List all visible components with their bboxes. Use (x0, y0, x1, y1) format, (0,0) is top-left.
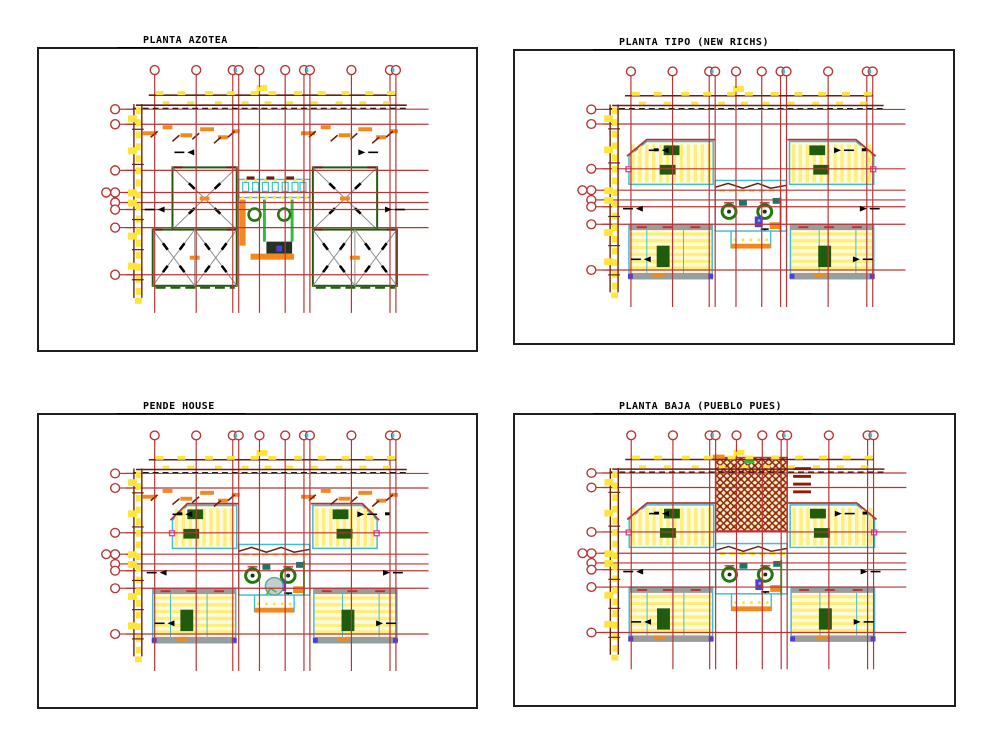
upper-apartment-wing (788, 503, 876, 547)
column-grid-bubbles-top (626, 67, 877, 88)
left-dimension-strip (128, 104, 144, 304)
panel-title-pende-house: PENDE HOUSE (117, 401, 245, 414)
title-text: PLANTA AZOTEA (143, 35, 228, 46)
panel-planta-tipo: PLANTA TIPO (NEW RICHS) (513, 49, 955, 345)
upper-apartment-wing (626, 503, 715, 547)
upper-apartment-wing (311, 504, 390, 549)
panel-pende-house: PENDE HOUSE (37, 413, 478, 709)
title-text: PLANTA BAJA (PUEBLO PUES) (619, 401, 782, 412)
left-dimension-strip (604, 468, 620, 660)
lower-apartment-room (790, 587, 875, 641)
roof-slope-room (313, 230, 397, 286)
plan-drawing-pende-house (39, 415, 476, 707)
left-dimension-strip (604, 105, 620, 299)
column-grid-bubbles-top (150, 431, 400, 452)
top-dimension-band (133, 450, 410, 472)
upper-apartment-wing (170, 504, 239, 549)
left-dimension-strip (128, 469, 144, 663)
roof-overhang-marks (143, 125, 240, 143)
plan-drawing-planta-baja (515, 415, 954, 705)
panel-title-planta-tipo: PLANTA TIPO (NEW RICHS) (593, 37, 799, 50)
panel-title-planta-baja: PLANTA BAJA (PUEBLO PUES) (593, 401, 812, 414)
top-dimension-band (609, 86, 886, 108)
central-roof-core (239, 176, 310, 259)
drawing-sheet: PLANTA AZOTEA PLANTA TIPO (NEW RICHS) PE… (0, 0, 1000, 751)
roof-slope-room (172, 167, 236, 229)
column-grid-bubbles-top (150, 66, 400, 88)
roof-overhang-marks (301, 125, 398, 143)
plan-drawing-planta-azotea (39, 49, 476, 350)
roof-slope-room (153, 230, 237, 286)
lower-apartment-room (789, 224, 874, 279)
title-text: PLANTA TIPO (NEW RICHS) (619, 37, 769, 48)
top-dimension-band (133, 85, 410, 108)
panel-planta-azotea: PLANTA AZOTEA (37, 47, 478, 352)
lower-apartment-room (628, 224, 713, 279)
title-text: PENDE HOUSE (143, 401, 215, 412)
roof-slope-room (313, 167, 377, 229)
upper-apartment-wing (788, 140, 876, 185)
panel-title-planta-azotea: PLANTA AZOTEA (117, 35, 258, 48)
upper-apartment-wing (626, 140, 715, 185)
column-grid-bubbles-top (627, 431, 878, 452)
plan-drawing-planta-tipo (515, 51, 953, 343)
lower-apartment-room (628, 587, 713, 641)
panel-planta-baja: PLANTA BAJA (PUEBLO PUES) (513, 413, 956, 707)
